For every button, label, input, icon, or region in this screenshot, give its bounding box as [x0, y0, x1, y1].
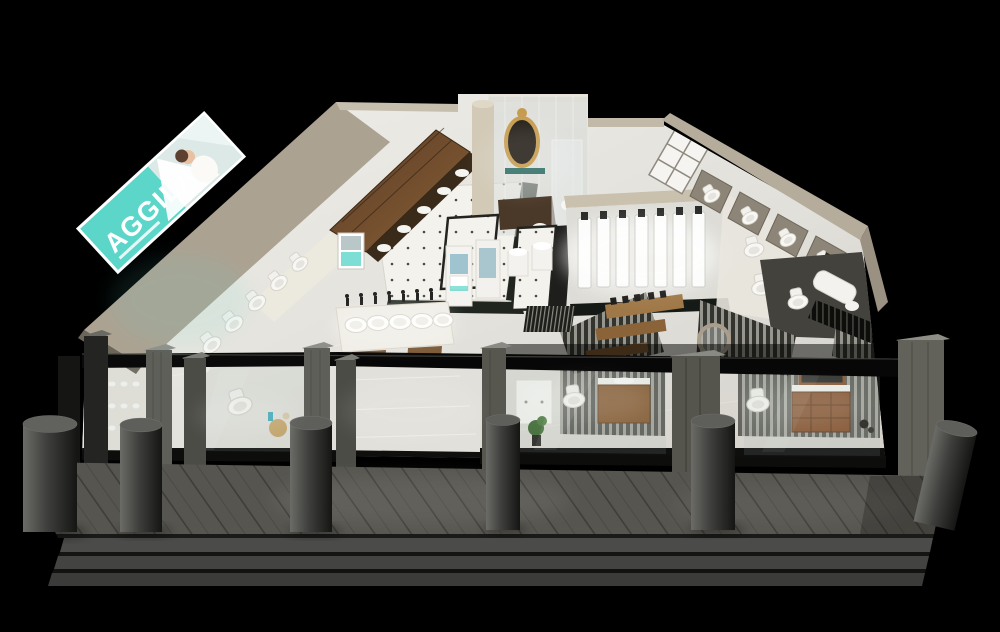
shower-columns — [578, 206, 705, 288]
fine-slat-screen — [523, 306, 575, 332]
dark-vanity-desk — [498, 196, 556, 230]
teal-counter — [505, 168, 545, 174]
showroom-scene: AGGILA — [0, 0, 1000, 632]
step — [48, 573, 925, 586]
top-wall — [588, 118, 664, 127]
step — [60, 538, 933, 552]
gold-ornate-mirror — [506, 118, 538, 166]
poster-pillar — [476, 240, 500, 298]
showroom-render: AGGILA — [0, 0, 1000, 632]
poster-pillar — [446, 246, 472, 306]
post — [82, 330, 112, 472]
entry-steps — [48, 538, 933, 586]
step — [54, 556, 929, 569]
post — [182, 352, 210, 476]
